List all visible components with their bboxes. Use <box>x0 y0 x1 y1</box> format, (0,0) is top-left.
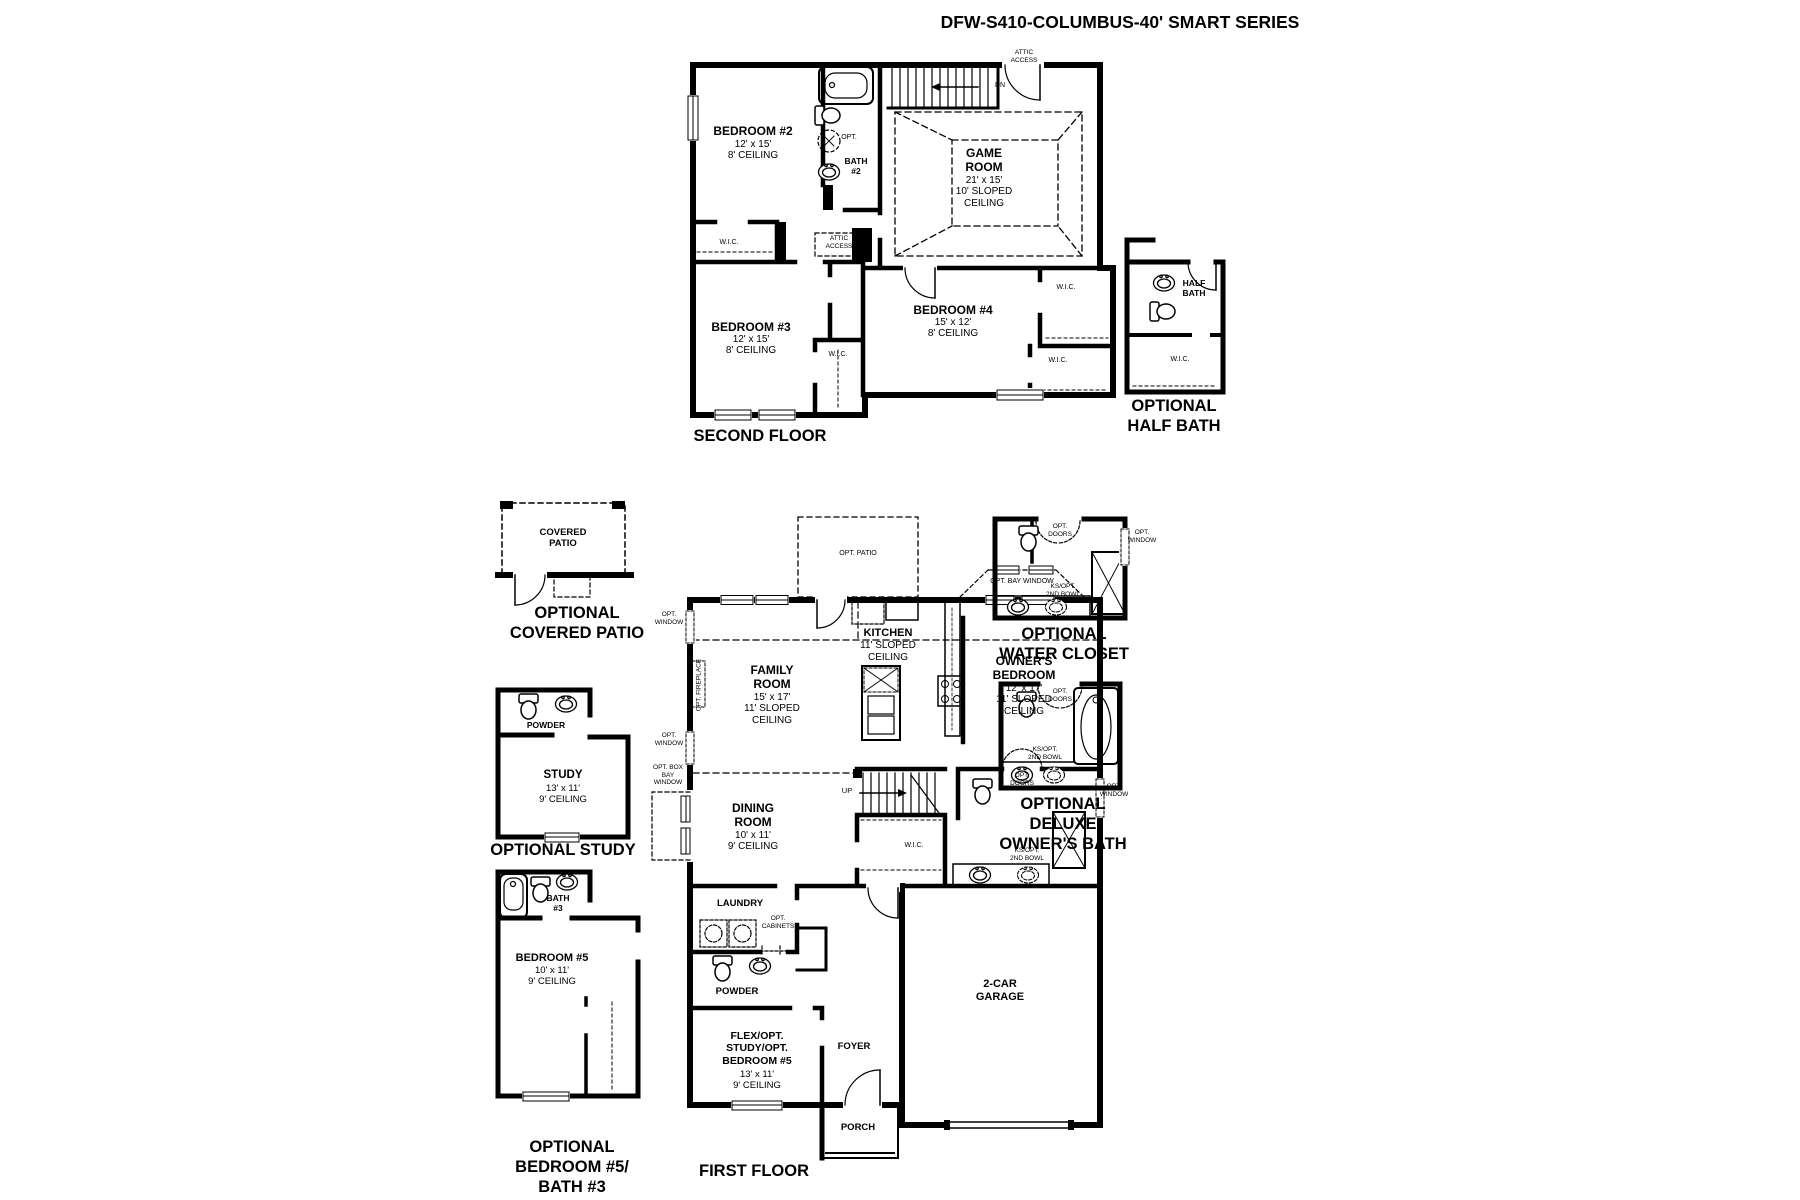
section-title-optional-covered-patio: OPTIONAL COVERED PATIO <box>510 603 644 643</box>
section-title-optional-water-closet: OPTIONAL WATER CLOSET <box>999 624 1129 664</box>
optional-study-plan <box>498 690 628 843</box>
room-ceiling-bedroom2: 8' CEILING <box>728 150 778 162</box>
annotation-opt-doors-wc: OPT. DOORS <box>1048 523 1072 538</box>
room-label-family-room: FAMILY ROOM <box>751 663 794 691</box>
counter <box>945 602 960 736</box>
sink-icon <box>1008 599 1029 615</box>
annotation-wic-half-bath: W.I.C. <box>1170 356 1189 364</box>
room-label-laundry: LAUNDRY <box>717 898 763 909</box>
opt-shower-cross <box>824 136 834 146</box>
room-label-bath3: BATH #3 <box>547 893 570 913</box>
wall-jamb <box>852 228 872 262</box>
room-ceiling-family-room: 11' SLOPED CEILING <box>744 703 800 727</box>
sink-icon <box>1154 275 1175 291</box>
room-label-foyer: FOYER <box>838 1041 871 1052</box>
room-dims-flex: 13' x 11' <box>740 1069 774 1080</box>
annotation-opt-cabinets: OPT. CABINETS <box>762 915 795 930</box>
annotation-opt-patio: OPT. PATIO <box>839 550 876 558</box>
floor-title-first: FIRST FLOOR <box>699 1162 809 1181</box>
toilet-icon <box>1019 526 1038 551</box>
refrigerator <box>852 602 884 624</box>
room-ceiling-game-room: 10' SLOPED CEILING <box>956 186 1012 210</box>
room-ceiling-bedroom4: 8' CEILING <box>928 328 978 340</box>
room-label-bedroom3: BEDROOM #3 <box>711 320 790 334</box>
second-floor-plan <box>686 59 1113 422</box>
room-label-bedroom2: BEDROOM #2 <box>713 124 792 138</box>
annotation-opt-shower: OPT. <box>841 134 857 142</box>
room-ceiling-dining-room: 9' CEILING <box>728 841 778 853</box>
floor-title-second: SECOND FLOOR <box>694 427 827 446</box>
room-ceiling-kitchen: 11' SLOPED CEILING <box>860 640 916 664</box>
sheet-title: DFW-S410-COLUMBUS-40' SMART SERIES <box>941 12 1300 33</box>
room-label-game-room: GAME ROOM <box>965 146 1002 174</box>
room-label-kitchen: KITCHEN <box>864 627 913 640</box>
optional-half-bath-plan <box>1127 240 1223 392</box>
room-ceiling-bedroom5: 9' CEILING <box>528 976 576 987</box>
sink-icon <box>556 696 577 712</box>
optional-covered-patio-plan <box>498 501 631 605</box>
annotation-wic-right-upper: W.I.C. <box>1056 284 1075 292</box>
wall-jamb <box>823 185 833 210</box>
floorplan-drawing <box>0 0 1800 1200</box>
room-ceiling-study: 9' CEILING <box>539 794 587 805</box>
section-title-optional-deluxe-owners-bath: OPTIONAL DELUXE OWNER'S BATH <box>999 794 1126 854</box>
toilet-icon <box>713 956 732 981</box>
kitchen-fixtures <box>852 602 962 740</box>
annotation-opt-bay-window: OPT. BAY WINDOW <box>990 578 1054 586</box>
toilet-icon <box>1150 302 1175 321</box>
room-dims-study: 13' x 11' <box>546 783 580 794</box>
annotation-ks-opt-2nd-bowl-deluxe: KS/OPT. 2ND BOWL <box>1028 746 1062 761</box>
garage-entry-door-arc <box>868 888 898 918</box>
annotation-opt-box-bay-window: OPT. BOX BAY WINDOW <box>653 764 683 787</box>
room-ceiling-owners-bedroom: 11' SLOPED CEILING <box>996 694 1052 718</box>
section-title-optional-bedroom5-bath3: OPTIONAL BEDROOM #5/ BATH #3 <box>515 1137 629 1197</box>
sink-icon <box>557 874 578 890</box>
room-label-study: STUDY <box>544 769 583 783</box>
room-dims-bedroom5: 10' x 11' <box>535 965 569 976</box>
room-label-bedroom4: BEDROOM #4 <box>913 303 992 317</box>
annotation-opt-doors-owners: OPT. DOORS <box>1010 772 1034 787</box>
room-label-flex: FLEX/OPT. STUDY/OPT. BEDROOM #5 <box>722 1030 791 1067</box>
annotation-opt-fireplace: OPT. FIREPLACE <box>696 659 703 711</box>
section-title-optional-study: OPTIONAL STUDY <box>490 841 635 860</box>
annotation-attic-access-door: ATTIC ACCESS <box>1011 49 1038 64</box>
room-label-garage: 2-CAR GARAGE <box>976 978 1024 1004</box>
room-label-study-powder: POWDER <box>527 720 565 730</box>
room-label-half-bath: HALF BATH <box>1183 278 1206 298</box>
section-title-optional-half-bath: OPTIONAL HALF BATH <box>1127 396 1220 436</box>
annotation-opt-window-upper: OPT. WINDOW <box>655 611 684 626</box>
counter <box>886 602 918 620</box>
room-label-bath2: BATH #2 <box>845 156 868 176</box>
annotation-wic-hall: W.I.C. <box>719 239 738 247</box>
toilet-icon <box>973 779 992 804</box>
room-label-powder: POWDER <box>716 986 759 997</box>
room-ceiling-bedroom3: 8' CEILING <box>726 345 776 357</box>
annotation-wic-right-lower: W.I.C. <box>1048 357 1067 365</box>
room-label-covered-patio: COVERED PATIO <box>540 527 587 549</box>
annotation-stairs-dn: DN <box>995 82 1005 90</box>
bathtub-icon <box>819 67 873 104</box>
annotation-wic-bedroom3: W.I.C. <box>828 351 847 359</box>
window-icon <box>522 1090 570 1102</box>
opt-second-sink-icon <box>1046 599 1067 615</box>
hall-closet-walls <box>797 928 826 970</box>
room-label-dining-room: DINING ROOM <box>732 801 774 829</box>
toilet-icon <box>519 694 538 719</box>
sink-icon <box>819 164 840 180</box>
opt-box-bay-window-icon <box>652 790 696 862</box>
annotation-stairs-up: UP <box>842 787 852 796</box>
garden-tub-icon <box>1074 688 1118 764</box>
wall-jamb <box>777 222 786 262</box>
annotation-owners-wic: W.I.C. <box>904 842 923 850</box>
closet-rails <box>861 820 941 870</box>
annotation-attic-access-panel: ATTIC ACCESS <box>826 235 853 250</box>
room-ceiling-flex: 9' CEILING <box>733 1080 781 1091</box>
annotation-opt-window-lower: OPT. WINDOW <box>655 732 684 747</box>
opt-second-sink-icon <box>1044 767 1065 783</box>
floorplan-sheet: DFW-S410-COLUMBUS-40' SMART SERIES BEDRO… <box>0 0 1800 1200</box>
toilet-icon <box>815 106 840 125</box>
annotation-ks-opt-2nd-bowl-wc: KS/OPT. 2ND BOWL <box>1046 583 1080 598</box>
bathtub-icon <box>500 874 527 918</box>
sink-icon <box>970 867 991 883</box>
annotation-opt-doors-deluxe: OPT. DOORS <box>1048 688 1072 703</box>
annotation-opt-window-wc: OPT. WINDOW <box>1128 529 1157 544</box>
room-label-bedroom5: BEDROOM #5 <box>516 952 589 965</box>
sink-icon <box>750 958 771 974</box>
opt-second-sink-icon <box>1018 867 1039 883</box>
room-label-porch: PORCH <box>841 1122 875 1133</box>
